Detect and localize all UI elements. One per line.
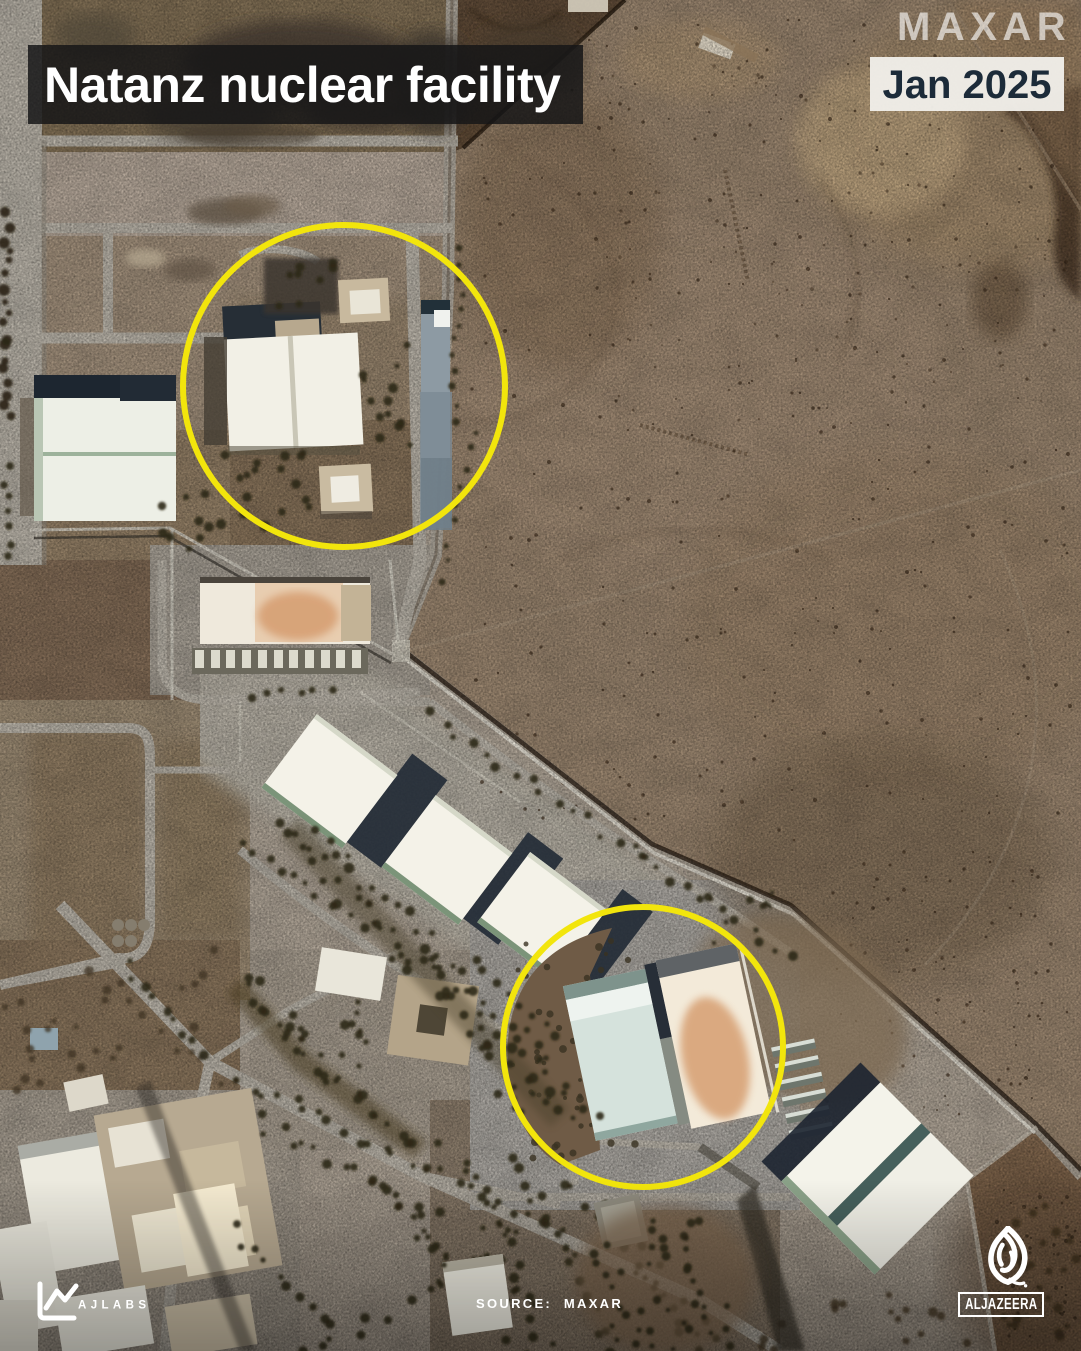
svg-text:AJLABS: AJLABS: [78, 1300, 150, 1312]
